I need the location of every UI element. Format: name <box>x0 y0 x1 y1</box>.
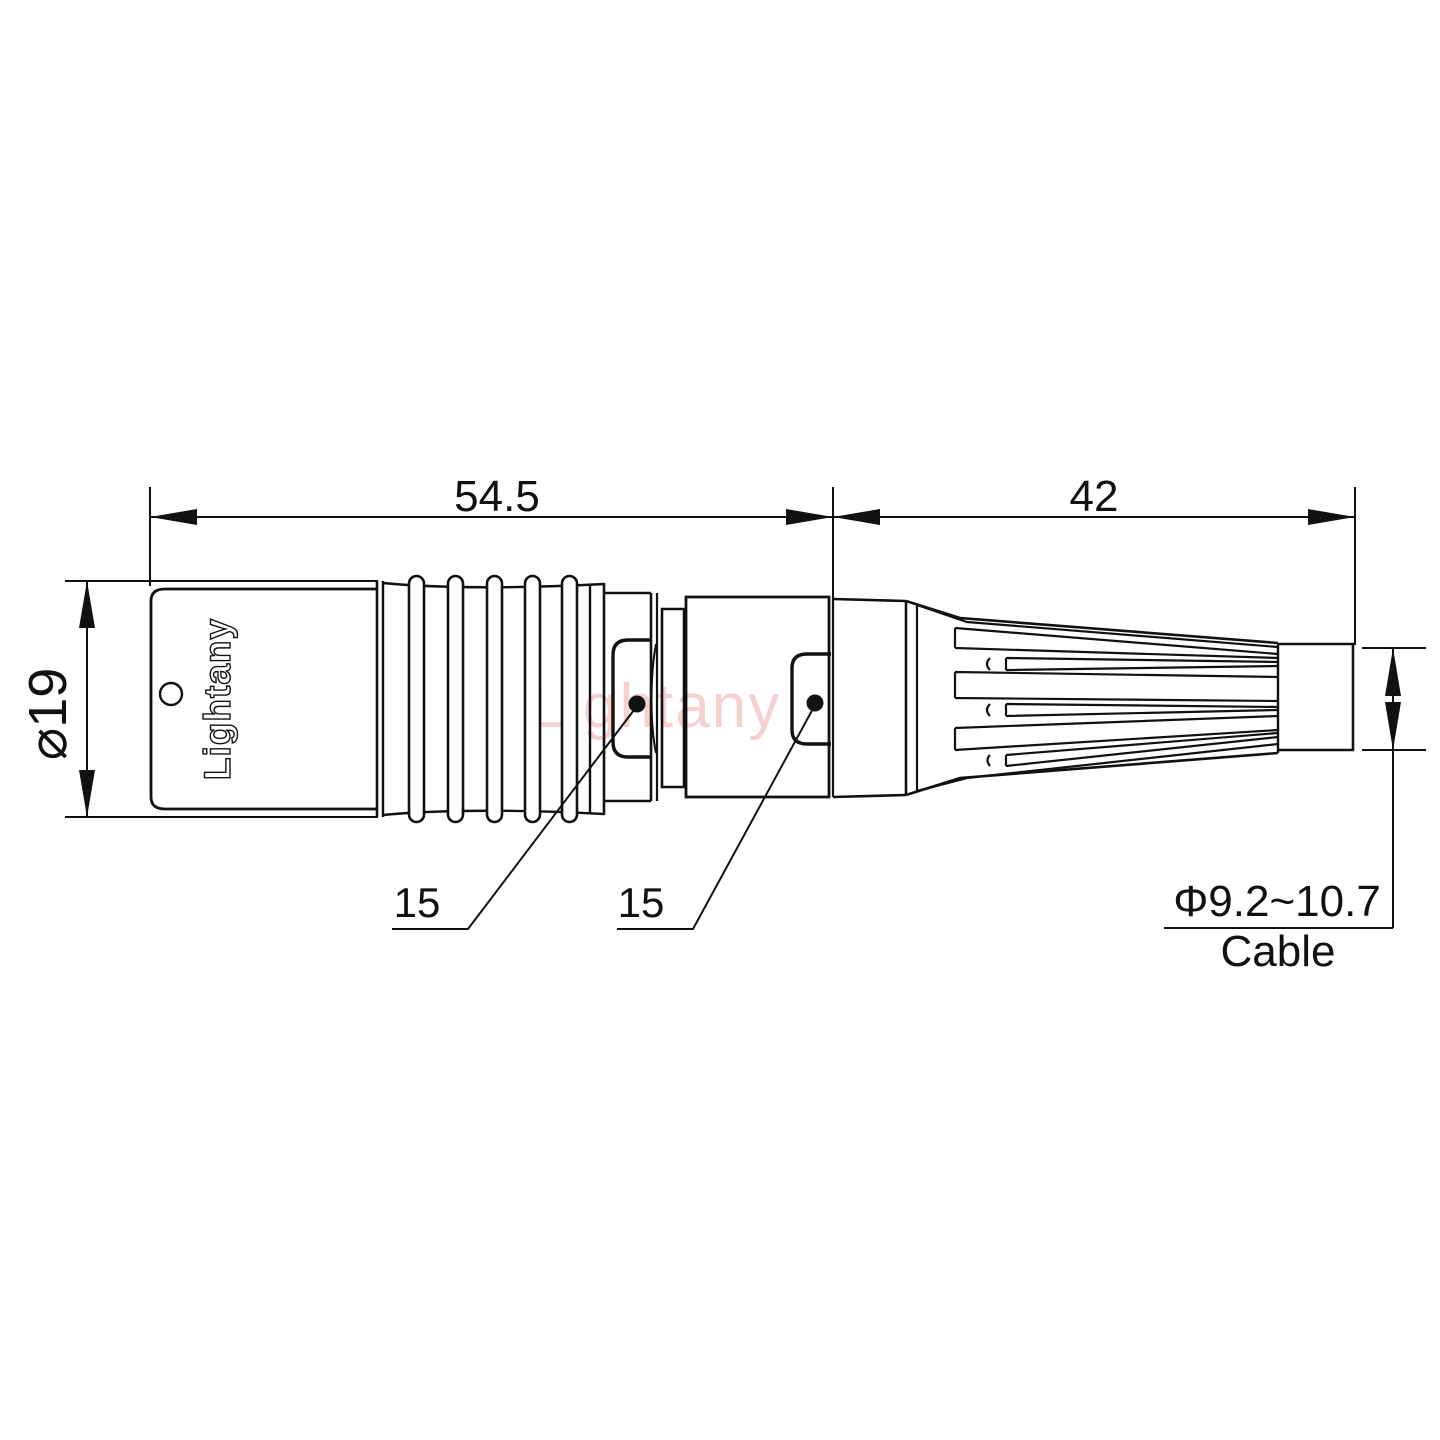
sleeve-outline <box>1278 644 1353 750</box>
body-hole <box>160 683 182 705</box>
dimension-front-length: 54.5 <box>454 472 540 521</box>
arrowhead <box>1308 509 1355 525</box>
arrowhead <box>150 509 197 525</box>
leader-label-front: 15 <box>394 879 441 926</box>
arrowhead <box>1385 702 1401 750</box>
grip-rib <box>525 576 540 822</box>
cone-slot-upper <box>987 658 1278 670</box>
connector-front-body <box>151 589 377 809</box>
strain-relief-cone <box>906 601 1278 795</box>
dimension-body-diameter: ⌀19 <box>18 668 78 761</box>
grip-rib <box>487 576 502 822</box>
cone-silhouette-bottom <box>906 753 1278 795</box>
backshell-top <box>833 599 906 601</box>
arrowhead <box>833 509 880 525</box>
grip-rib <box>409 576 424 822</box>
front-body-outline <box>151 589 377 809</box>
technical-drawing-page: Lightany 54.5 42 ⌀19 Lightany <box>0 0 1440 1440</box>
leader-dot-front <box>629 696 646 713</box>
backshell <box>833 599 917 797</box>
arrowhead <box>79 770 95 817</box>
backshell-bottom <box>833 795 906 797</box>
cone-top-facet <box>917 605 1278 647</box>
cone-silhouette-top <box>906 601 1278 643</box>
brand-engraving: Lightany <box>197 618 238 780</box>
arrowhead <box>786 509 833 525</box>
grip-rib <box>562 576 577 822</box>
cable-diameter-range: Φ9.2~10.7 <box>1173 877 1381 926</box>
leader-dot-rear <box>807 695 824 712</box>
grip-rib <box>448 576 463 822</box>
cone-slot-middle <box>987 704 1278 716</box>
leader-label-rear: 15 <box>618 879 665 926</box>
cone-fin-bottom <box>955 716 1278 750</box>
cable-sleeve <box>1278 644 1353 750</box>
arrowhead <box>1385 648 1401 696</box>
connector-technical-drawing: Lightany 54.5 42 ⌀19 Lightany <box>0 0 1440 1440</box>
cone-fin-middle <box>955 672 1278 701</box>
dimension-rear-length: 42 <box>1070 472 1119 521</box>
arrowhead <box>79 581 95 628</box>
cable-label: Cable <box>1221 927 1336 976</box>
